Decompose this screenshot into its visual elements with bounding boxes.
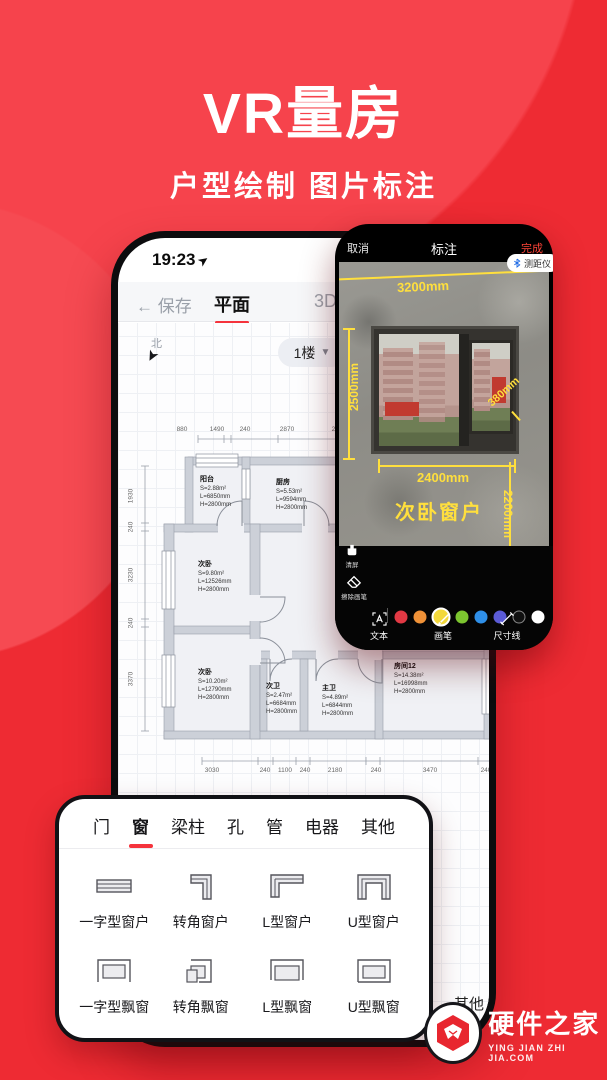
room-label-master-bath: 主卫 S=4.89m² L=6844mm H=2800mm [322, 685, 353, 718]
dim-label: 3370 [128, 672, 135, 686]
tab-hole[interactable]: 孔 [227, 813, 244, 848]
item-u-window[interactable]: U型窗户 [331, 863, 418, 932]
dim-label: 240 [128, 522, 135, 533]
tab-pipe[interactable]: 管 [266, 813, 283, 848]
measure-label-top: 3200mm [397, 278, 450, 295]
color-swatch-orange[interactable] [414, 611, 427, 624]
hexagon-logo-icon [432, 1012, 474, 1054]
clear-screen-button[interactable]: 清屏 [345, 544, 359, 569]
tab-3d[interactable]: 3D [314, 291, 337, 312]
brush-tool-icon [435, 612, 450, 626]
watermark-text: 硬件之家 YING JIAN ZHI JIA.COM [488, 1004, 607, 1063]
watermark-domain: YING JIAN ZHI JIA.COM [488, 1043, 607, 1063]
watermark-name: 硬件之家 [488, 1004, 607, 1041]
tab-plan-2d[interactable]: 平面 [214, 291, 250, 317]
item-l-window[interactable]: L型窗户 [244, 863, 331, 932]
room-label-bedroom3: 次卧 S=10.20m² L=12790mm H=2800mm [198, 669, 232, 702]
dim-label: 1490 [210, 426, 224, 433]
location-arrow-icon: ➤ [195, 251, 213, 270]
dim-label: 1100 [278, 767, 292, 774]
l-window-icon [265, 871, 309, 901]
rangefinder-button[interactable]: 测距仪 [507, 254, 553, 272]
dim-label: 3470 [423, 767, 437, 774]
watermark: 硬件之家 YING JIAN ZHI JIA.COM [424, 1002, 607, 1064]
eraser-icon [346, 574, 362, 589]
status-time: 19:23➤ [152, 250, 209, 270]
item-u-baywindow[interactable]: U型飘窗 [331, 948, 418, 1017]
dim-label: 2180 [328, 767, 342, 774]
component-grid: 一字型窗户 转角窗户 L型窗户 [71, 863, 417, 1017]
clear-screen-icon [345, 544, 359, 557]
measure-cap [343, 458, 355, 460]
color-swatch-green[interactable] [456, 611, 469, 624]
l-baywindow-icon [265, 956, 309, 986]
item-straight-window[interactable]: 一字型窗户 [71, 863, 158, 932]
measure-line-width [378, 465, 516, 467]
annotation-toolbar: 清屏 擦除画笔 [335, 546, 553, 650]
tab-electric[interactable]: 电器 [305, 813, 339, 848]
item-corner-baywindow[interactable]: 转角飘窗 [158, 948, 245, 1017]
room-label-kitchen: 厨房 S=5.53m² L=9594mm H=2800mm [276, 479, 307, 512]
text-tool-button[interactable]: 文本 [370, 612, 388, 642]
component-picker-panel: 门 窗 梁柱 孔 管 电器 其他 一字型窗户 [55, 795, 433, 1042]
corner-baywindow-icon [179, 956, 223, 986]
tab-other[interactable]: 其他 [361, 813, 395, 848]
tab-window[interactable]: 窗 [132, 813, 149, 848]
annotated-photo[interactable]: 3200mm 2500mm 380mm 2400mm 2200mm 次卧窗户 [339, 262, 549, 546]
annotation-phone: 取消 标注 完成 测距仪 [335, 224, 553, 650]
window-mullion [459, 334, 469, 446]
dim-label: 240 [371, 767, 382, 774]
color-swatch-white[interactable] [532, 611, 545, 624]
promo-page: VR量房 户型绘制 图片标注 19:23➤ ← 保存 平面 3D 北 ➤ 1楼 … [0, 0, 607, 1080]
brush-tool-button[interactable]: 画笔 [434, 612, 452, 642]
straight-baywindow-icon [92, 956, 136, 986]
u-baywindow-icon [352, 956, 396, 986]
room-label-bedroom2: 次卧 S=9.80m² L=12526mm H=2800mm [198, 561, 232, 594]
dimension-tool-icon [499, 612, 514, 626]
straight-window-icon [92, 871, 136, 901]
page-title: VR量房 [0, 68, 607, 150]
measure-cap [514, 459, 516, 473]
dim-label: 240 [300, 767, 311, 774]
color-swatch-red[interactable] [395, 611, 408, 624]
dim-label: 880 [177, 426, 188, 433]
dim-label: 1930 [128, 489, 135, 503]
watermark-badge [424, 1002, 482, 1064]
tab-beam[interactable]: 梁柱 [171, 813, 205, 848]
dim-label: 240 [481, 767, 489, 774]
back-save-button[interactable]: ← 保存 [136, 292, 192, 317]
room-label-balcony: 阳台 S=2.88m² L=6850mm H=2800mm [200, 476, 231, 509]
page-subtitle: 户型绘制 图片标注 [0, 163, 607, 205]
measure-cap [378, 459, 380, 473]
item-corner-window[interactable]: 转角窗户 [158, 863, 245, 932]
chevron-down-icon: ▼ [320, 347, 330, 358]
measure-label-width: 2400mm [417, 470, 469, 485]
measure-cap [343, 328, 355, 330]
dim-label: 3230 [128, 568, 135, 582]
window-pane-left [379, 334, 459, 446]
bluetooth-icon [513, 257, 521, 269]
panel-divider [59, 848, 429, 849]
room-label-room12: 房间12 S=14.38m² L=16998mm H=2800mm [394, 663, 428, 696]
dim-label: 240 [260, 767, 271, 774]
category-tabs: 门 窗 梁柱 孔 管 电器 其他 [93, 813, 395, 848]
dim-label: 3030 [205, 767, 219, 774]
text-tool-icon [371, 612, 386, 626]
item-l-baywindow[interactable]: L型飘窗 [244, 948, 331, 1017]
corner-window-icon [179, 871, 223, 901]
measure-label-left: 2500mm [347, 363, 361, 411]
eraser-button[interactable]: 擦除画笔 [341, 574, 367, 601]
color-swatch-blue[interactable] [475, 611, 488, 624]
dimension-tool-button[interactable]: 尺寸线 [493, 612, 520, 642]
dim-label: 2870 [280, 426, 294, 433]
photo-caption: 次卧窗户 [395, 496, 483, 525]
room-label-second-bath: 次卫 S=2.47m² L=6684mm H=2800mm [266, 683, 297, 716]
tab-door[interactable]: 门 [93, 813, 110, 848]
u-window-icon [352, 871, 396, 901]
dim-label: 240 [240, 426, 251, 433]
dim-label: 240 [128, 618, 135, 629]
item-straight-baywindow[interactable]: 一字型飘窗 [71, 948, 158, 1017]
measure-label-right: 2200mm [501, 490, 515, 538]
